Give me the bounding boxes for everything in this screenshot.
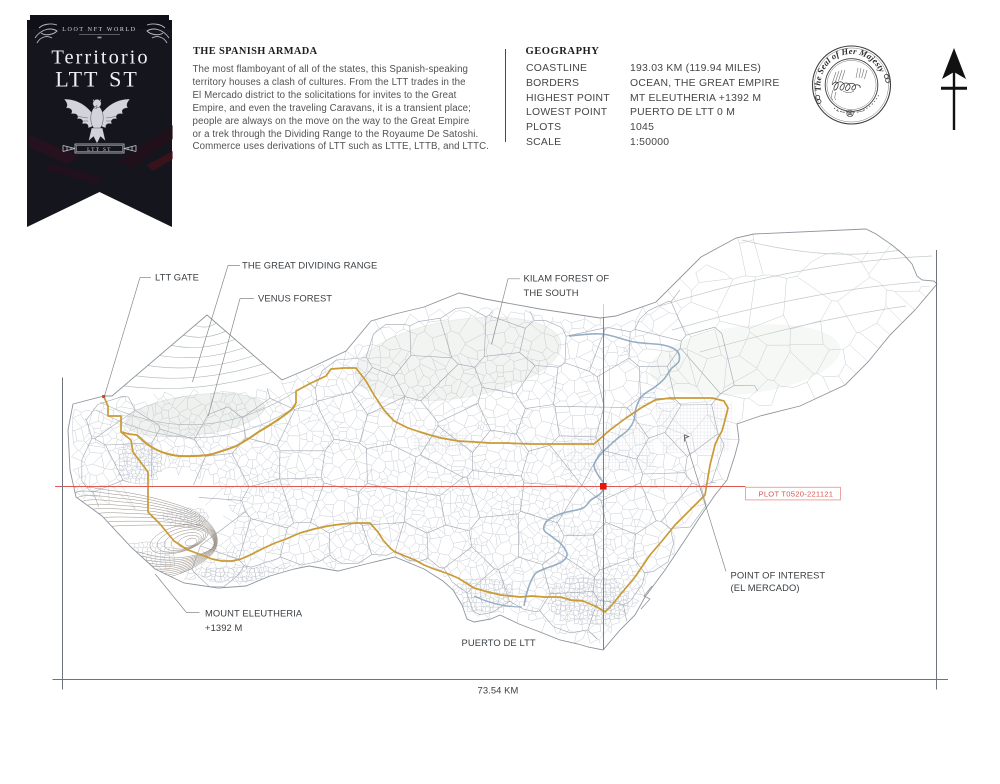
- svg-text:LTT ST: LTT ST: [55, 67, 139, 92]
- svg-text:(EL MERCADO): (EL MERCADO): [731, 582, 800, 593]
- svg-text:Territorio: Territorio: [51, 47, 149, 69]
- svg-text:VENUS FOREST: VENUS FOREST: [258, 293, 332, 304]
- svg-text:MOUNT ELEUTHERIA: MOUNT ELEUTHERIA: [205, 608, 303, 619]
- svg-text:LTT GATE: LTT GATE: [155, 272, 199, 283]
- svg-text:POINT OF INTEREST: POINT OF INTEREST: [731, 570, 826, 581]
- svg-text:KILAM FOREST OF: KILAM FOREST OF: [524, 273, 610, 284]
- svg-text:+1392 M: +1392 M: [205, 622, 243, 633]
- svg-text:PUERTO DE LTT: PUERTO DE LTT: [462, 637, 536, 648]
- svg-text:THE SOUTH: THE SOUTH: [524, 287, 579, 298]
- svg-text:73.54 KM: 73.54 KM: [478, 685, 519, 696]
- svg-text:LTT ST: LTT ST: [87, 147, 112, 153]
- svg-text:THE GREAT DIVIDING RANGE: THE GREAT DIVIDING RANGE: [242, 259, 377, 270]
- svg-text:LOOT NFT WORLD: LOOT NFT WORLD: [62, 27, 136, 33]
- svg-text:PLOT T0520-221121: PLOT T0520-221121: [759, 489, 834, 498]
